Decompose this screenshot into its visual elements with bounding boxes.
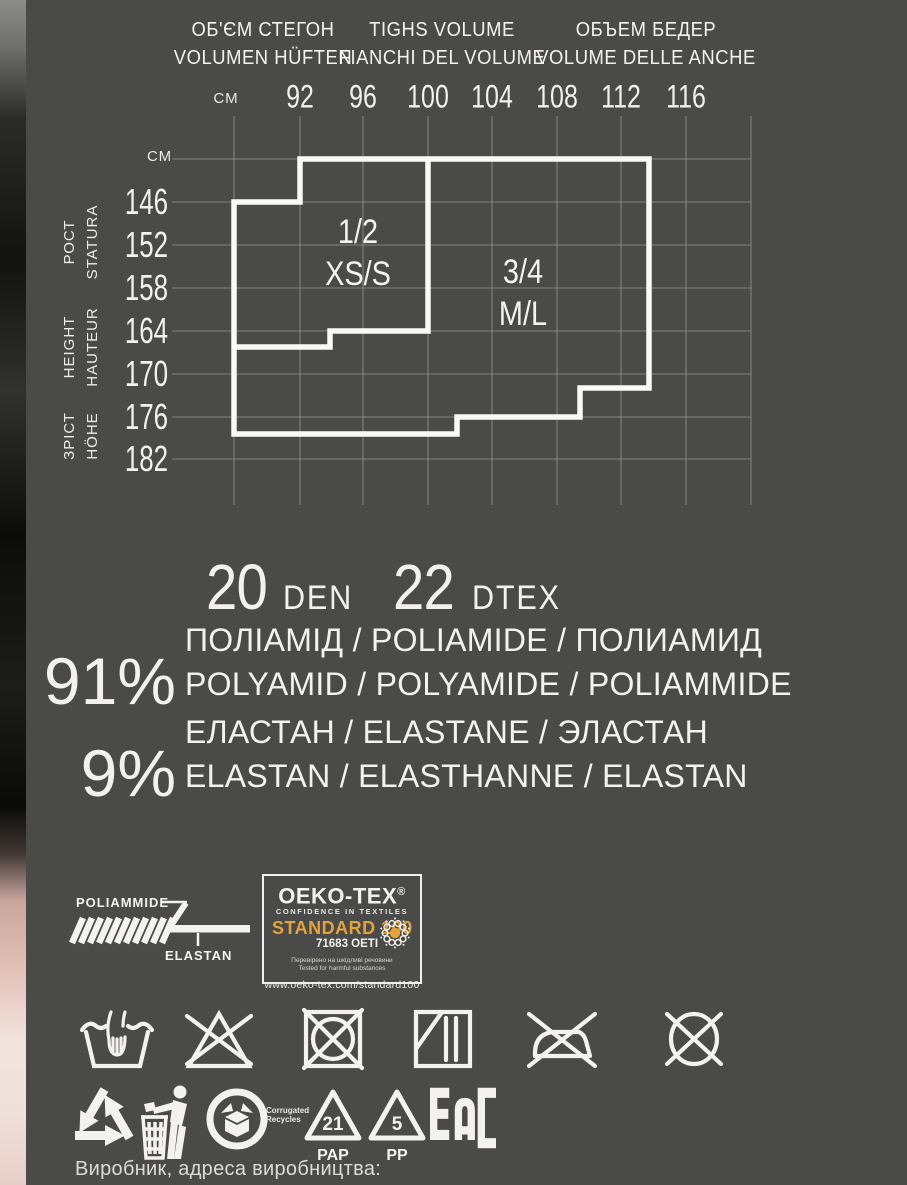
caption-line: STATURA: [81, 205, 104, 280]
tidy-man-icon: [139, 1084, 201, 1160]
oeko-flower-icon: [376, 914, 414, 952]
x-tick-116: 116: [660, 79, 711, 116]
caption-line: ЗРІСТ: [58, 412, 81, 460]
y-tick-176: 176: [98, 396, 168, 438]
y-tick-152: 152: [98, 224, 168, 266]
hand-wash-icon: [78, 1004, 156, 1074]
elastane-names-2: ELASTAN / ELASTHANNE / ELASTAN: [185, 754, 748, 798]
region-label-size-3-4-m-l: 3/4: [503, 252, 543, 291]
recycling-mobius-icon: [68, 1086, 138, 1156]
x-axis-unit: СМ: [213, 90, 238, 107]
do-not-iron-icon: [521, 1004, 603, 1074]
do-not-bleach-icon: [180, 1004, 258, 1074]
composition-row-elastane: 9% ЕЛАСТАН / ELASTANE / ЭЛАСТАН ELASTAN …: [40, 710, 748, 798]
polyamide-names-1: ПОЛІАМІД / POLIAMIDE / ПОЛИАМИД: [185, 618, 792, 662]
oeko-url: www.oeko-tex.com/standard100: [264, 979, 420, 991]
fiber-structure-diagram: POLIAMMIDE ELASTAN: [62, 878, 262, 974]
elastane-percent: 9%: [40, 744, 176, 802]
denier-row: 20 DEN 22 DTEX: [206, 550, 571, 624]
region-label-size-1-2-xs-s: 1/2: [338, 212, 378, 251]
header-line: ОБЪЕМ БЕДЕР: [536, 16, 756, 44]
oeko-tex-brand: OEKO-TEX®: [264, 881, 420, 907]
oeko-note-uk: Перевірено на шкідливі речовини: [264, 957, 420, 965]
oeko-tex-label: OEKO-TEX® CONFIDENCE IN TEXTILES STANDAR…: [262, 874, 422, 984]
do-not-tumble-dry-icon: [294, 1004, 372, 1074]
caption-line: РОСТ: [58, 205, 81, 280]
y-tick-164: 164: [98, 310, 168, 352]
x-tick-112: 112: [595, 79, 646, 116]
brand-text: OEKO-TEX: [278, 883, 397, 908]
region-label-size-1-2-xs-s: XS/S: [325, 254, 391, 293]
den-value: 20: [206, 550, 267, 624]
adjacent-photo-strip: [0, 0, 26, 1185]
caption-line: HAUTEUR: [81, 307, 104, 387]
composition-row-polyamide: 91% ПОЛІАМІД / POLIAMIDE / ПОЛИАМИД POLY…: [40, 618, 792, 706]
polyamide-percent: 91%: [40, 652, 176, 710]
y-tick-170: 170: [98, 353, 168, 395]
pap-number: 21: [322, 1114, 344, 1135]
do-not-dry-clean-icon: [655, 1004, 733, 1074]
y-caption-zrist-hohe: ЗРІСТ HÖHE: [58, 412, 104, 460]
recycle-pap-21-icon: 21 PAP: [302, 1086, 364, 1162]
corrugated-recycles-icon: [204, 1086, 270, 1152]
recycle-pp-5-icon: 5 PP: [366, 1086, 428, 1162]
pp-number: 5: [392, 1114, 403, 1135]
size-regions-outline: [234, 159, 649, 434]
caption-line: HÖHE: [81, 412, 104, 460]
y-tick-146: 146: [98, 181, 168, 223]
pp-label: PP: [386, 1147, 408, 1162]
registered-mark: ®: [397, 886, 406, 898]
x-tick-100: 100: [401, 79, 454, 116]
core-yarn: [169, 925, 250, 933]
y-caption-rost-statura: РОСТ STATURA: [58, 205, 104, 280]
header-line: VOLUMEN HÜFTEN: [174, 44, 352, 72]
eac-mark-icon: [430, 1084, 496, 1152]
dtex-value: 22: [393, 550, 454, 624]
drip-dry-in-shade-icon: [404, 1004, 482, 1074]
den-unit: DEN: [283, 579, 353, 618]
dtex-unit: DTEX: [472, 579, 561, 618]
y-axis-unit: СМ: [147, 148, 172, 165]
header-col-3: ОБЪЕМ БЕДЕР VOLUME DELLE ANCHE: [527, 16, 766, 72]
header-col-2: TIGHS VOLUME FIANCHI DEL VOLUME: [330, 16, 555, 72]
caption-line: HEIGHT: [58, 307, 81, 387]
header-line: VOLUME DELLE ANCHE: [536, 44, 756, 72]
size-regions-divider: [234, 159, 428, 347]
coiled-yarn: [72, 918, 173, 943]
x-tick-104: 104: [465, 79, 518, 116]
packaging-back-label: ОБ'ЄМ СТЕГОН VOLUMEN HÜFTEN TIGHS VOLUME…: [0, 0, 907, 1185]
fiber-outer-label: POLIAMMIDE: [76, 895, 169, 910]
header-line: ОБ'ЄМ СТЕГОН: [174, 16, 352, 44]
y-caption-height-hauteur: HEIGHT HAUTEUR: [58, 307, 104, 387]
elastane-names-1: ЕЛАСТАН / ELASTANE / ЭЛАСТАН: [185, 710, 748, 754]
y-tick-182: 182: [98, 438, 168, 480]
x-tick-108: 108: [530, 79, 583, 116]
producer-label: Виробник, адреса виробництва:: [75, 1158, 381, 1181]
region-label-size-3-4-m-l: M/L: [499, 294, 547, 333]
polyamide-names-2: POLYAMID / POLYAMIDE / POLIAMMIDE: [185, 662, 792, 706]
fiber-core-label: ELASTAN: [165, 948, 232, 963]
x-tick-92: 92: [282, 79, 318, 116]
header-line: FIANCHI DEL VOLUME: [339, 44, 546, 72]
y-tick-158: 158: [98, 267, 168, 309]
header-line: TIGHS VOLUME: [339, 16, 546, 44]
oeko-note-en: Tested for harmful substances: [264, 965, 420, 973]
x-tick-96: 96: [345, 79, 381, 116]
